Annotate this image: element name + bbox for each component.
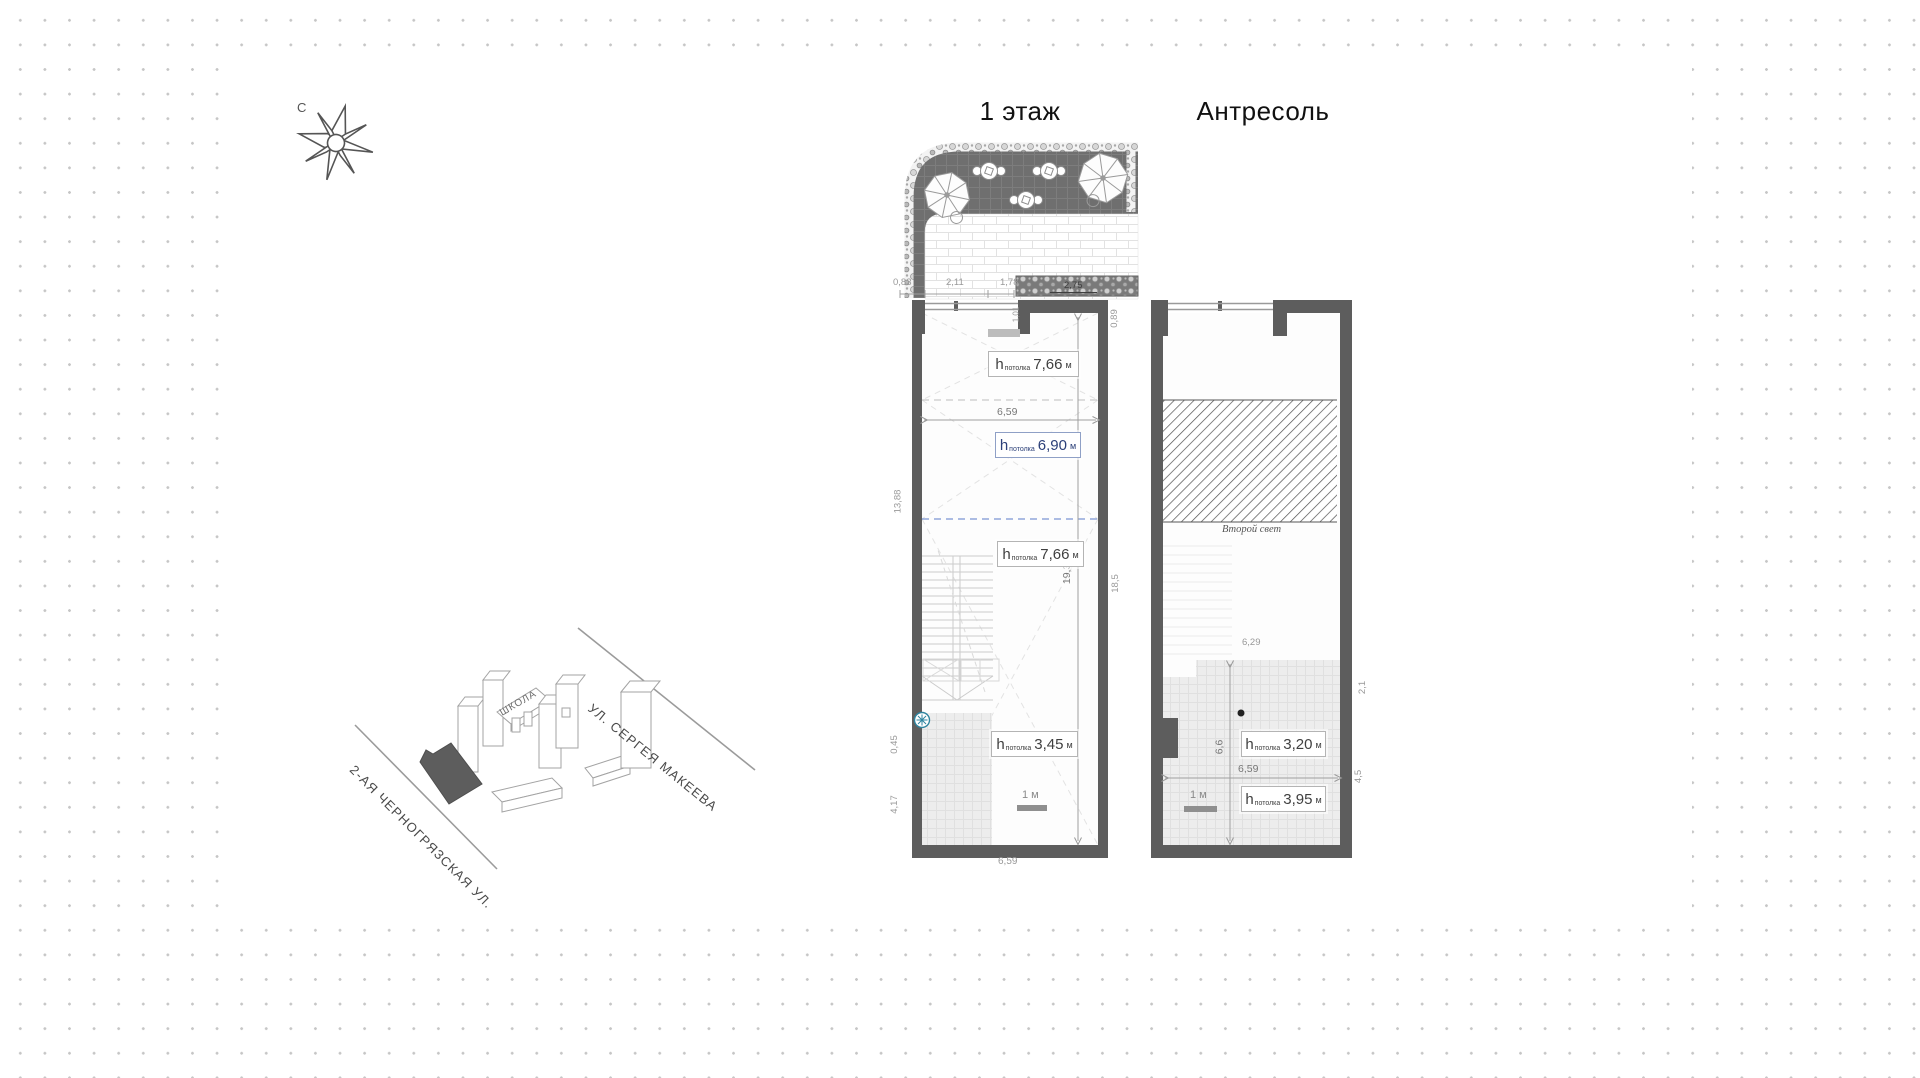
entrance-marker-icon <box>915 713 930 728</box>
height-value: 3,95 <box>1283 792 1312 807</box>
height-sub: потолка <box>1006 745 1032 752</box>
height-value: 3,20 <box>1283 737 1312 752</box>
terrace-dim-2: 1,78 <box>1000 277 1019 288</box>
mezzanine-width-dim: 6,59 <box>1238 763 1258 775</box>
height-value: 3,45 <box>1034 737 1063 752</box>
street-line-makeeva <box>578 628 755 770</box>
height-prefix: h <box>996 737 1004 752</box>
terrace-dim-0: 0,83 <box>893 277 912 288</box>
height-sub: потолка <box>1255 800 1281 807</box>
height-unit: м <box>1072 548 1078 560</box>
height-unit: м <box>1066 738 1072 750</box>
floor1-left-dim-1: 0,45 <box>889 735 900 754</box>
floor1-plan <box>912 300 1108 858</box>
floor1-left-dim-2: 4,17 <box>889 795 900 814</box>
height-prefix: h <box>1000 438 1008 453</box>
floor1-scale-bar <box>1017 805 1047 811</box>
floor1-left-dim-0: 13,88 <box>892 490 903 514</box>
void-hatch <box>1163 400 1337 522</box>
ceiling-height-label-5: hпотолка3,20м <box>1241 731 1326 757</box>
height-value: 6,90 <box>1038 438 1067 453</box>
mezzanine-scale-bar <box>1184 806 1217 812</box>
height-value: 7,66 <box>1040 547 1069 562</box>
mezzanine-title: Антресоль <box>1193 96 1333 127</box>
height-unit: м <box>1070 439 1076 451</box>
ceiling-height-label-2: hпотолка6,90м <box>995 432 1081 458</box>
height-prefix: h <box>1002 547 1010 562</box>
column-marker <box>1238 710 1245 717</box>
height-value: 7,66 <box>1033 357 1062 372</box>
floor1-title: 1 этаж <box>950 96 1090 127</box>
ceiling-height-label-3: hпотолка7,66м <box>997 541 1084 567</box>
height-prefix: h <box>995 357 1003 372</box>
plan-linework <box>0 0 1920 1078</box>
floor1-entry-sill <box>988 329 1020 337</box>
mezzanine-right-dim-bottom: 4,5 <box>1353 770 1364 783</box>
floor1-right-dim-main: 18,5 <box>1110 574 1121 593</box>
floor1-right-dim-top: 0,89 <box>1109 309 1120 328</box>
mezzanine-right-dim-top: 2,1 <box>1357 681 1368 694</box>
height-sub: потолка <box>1009 446 1035 453</box>
height-sub: потолка <box>1012 555 1038 562</box>
terrace-dim-1: 2,11 <box>946 277 964 288</box>
mezzanine-scale-label: 1 м <box>1190 789 1207 801</box>
floor1-tiled-zone <box>922 713 992 845</box>
compass-north-label: С <box>297 100 306 115</box>
height-prefix: h <box>1245 737 1253 752</box>
height-unit: м <box>1065 358 1071 370</box>
floor1-bottom-width-dim: 6,59 <box>998 856 1017 867</box>
floorplan-page: { "titles": { "floor1": "1 этаж", "mezza… <box>0 0 1920 1078</box>
height-unit: м <box>1315 738 1321 750</box>
floor1-width-dim: 6,59 <box>997 406 1017 418</box>
terrace <box>900 143 1138 299</box>
ceiling-height-label-1: hпотолка7,66м <box>988 351 1079 377</box>
height-prefix: h <box>1245 792 1253 807</box>
mezzanine-upper-width-dim: 6,29 <box>1242 637 1261 648</box>
ceiling-height-label-4: hпотолка3,45м <box>991 731 1078 757</box>
height-sub: потолка <box>1005 365 1031 372</box>
height-sub: потолка <box>1255 745 1281 752</box>
mezzanine-depth-dim: 6,6 <box>1213 740 1225 755</box>
planter-dim: 2,75 <box>1050 280 1097 293</box>
floor1-entry-dim: 1,01 <box>1011 307 1020 323</box>
ceiling-height-label-6: hпотолка3,95м <box>1241 786 1326 812</box>
void-label: Второй свет <box>1222 524 1281 535</box>
height-unit: м <box>1315 793 1321 805</box>
floor1-scale-label: 1 м <box>1022 789 1039 801</box>
